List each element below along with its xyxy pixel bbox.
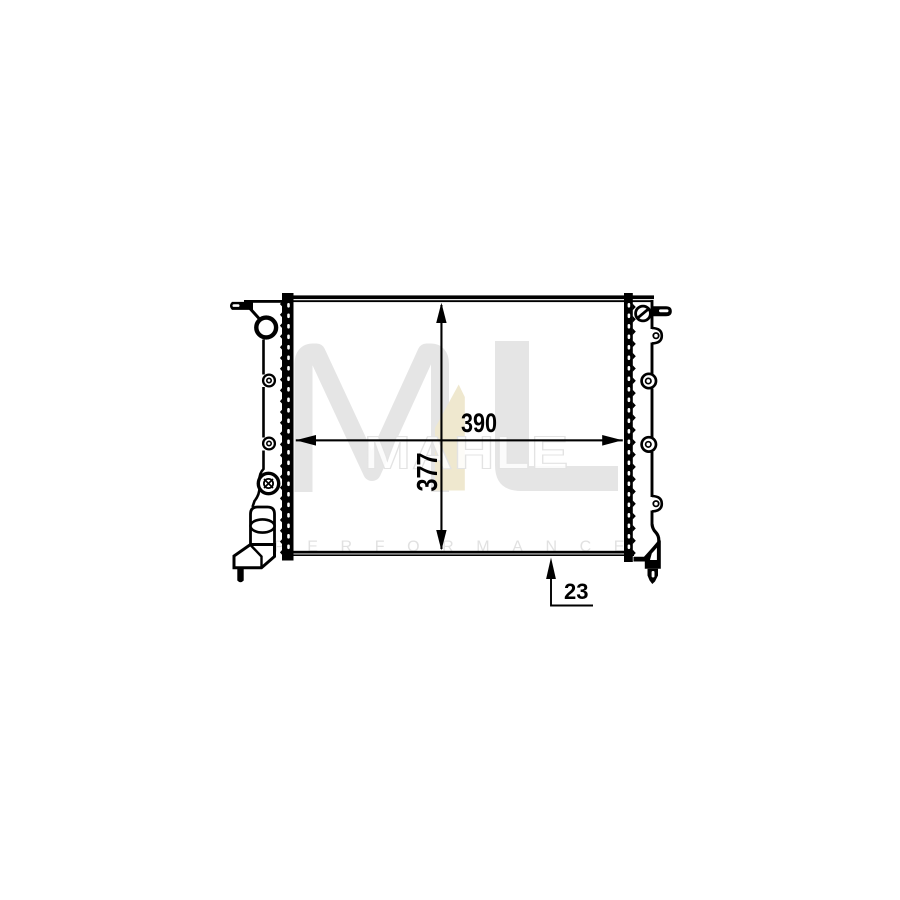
svg-text:23: 23 [564, 579, 588, 604]
svg-text:377: 377 [412, 453, 444, 492]
svg-text:390: 390 [461, 408, 497, 438]
